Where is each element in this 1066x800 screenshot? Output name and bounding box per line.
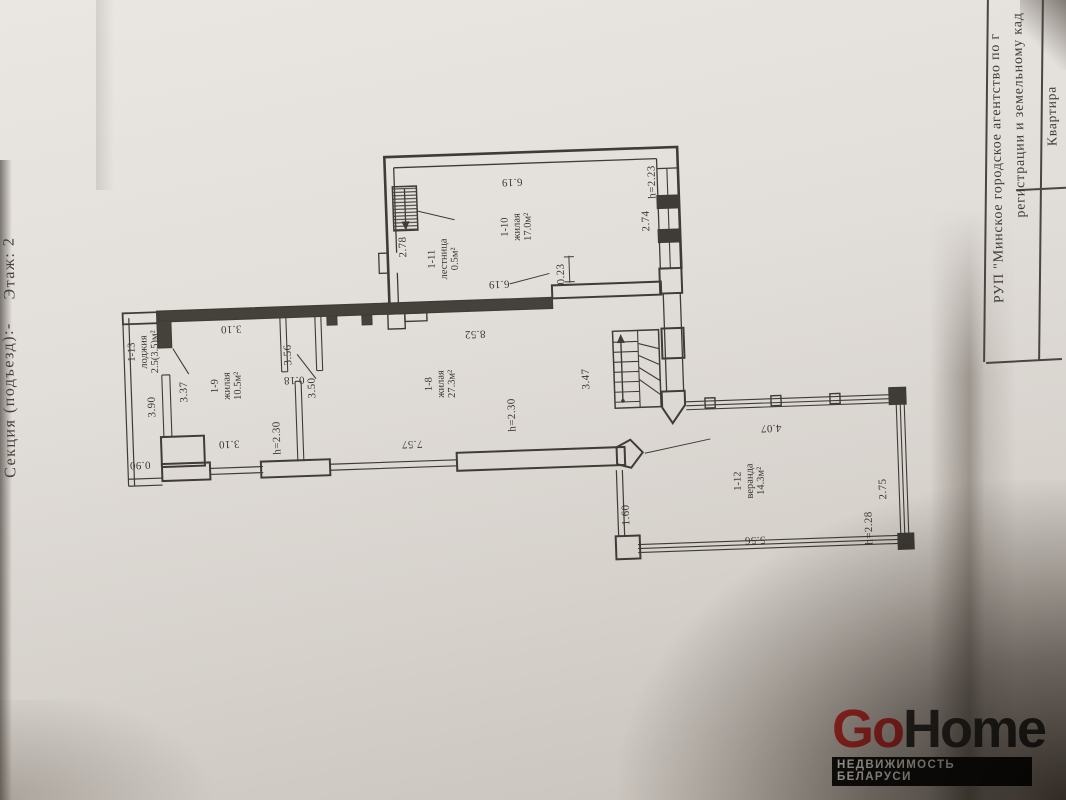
gohome-logo-text: GoHome <box>832 704 1032 754</box>
partitions <box>280 316 326 461</box>
winder-staircase <box>613 330 662 409</box>
logo-tagline-bar: НЕДВИЖИМОСТЬ БЕЛАРУСИ <box>832 757 1032 786</box>
bay-pier-upper <box>662 391 686 424</box>
floor-plan-linework <box>0 0 1066 800</box>
gohome-watermark: GoHome НЕДВИЖИМОСТЬ БЕЛАРУСИ <box>832 704 1032 786</box>
dim-3.90: 3.90 <box>146 396 159 417</box>
main-top-wall <box>157 297 554 337</box>
room-label-1-13: 1-13лоджия2.5(3.5)м² <box>126 330 161 374</box>
dim-3.10-top: 3.10 <box>220 323 241 336</box>
dim-2.75: 2.75 <box>877 478 890 499</box>
balcony-door-swing <box>173 348 189 375</box>
dim-0.90: 0.90 <box>129 459 150 472</box>
stair-1-11-hatch <box>392 185 454 231</box>
dim-4.07: 4.07 <box>760 422 781 435</box>
room-1-10-bottom-wall <box>552 282 661 299</box>
dim-1.60: 1.60 <box>620 504 633 525</box>
dim-5.56: 5.56 <box>744 534 765 547</box>
room-label-1-12: 1-12веранда14.3м² <box>732 463 767 499</box>
logo-go-part: Go <box>832 699 903 759</box>
dim-3.47: 3.47 <box>580 368 593 389</box>
kvartira-cell-label: Квартира <box>1043 86 1060 146</box>
dim-3.56: 3.56 <box>282 344 295 365</box>
dim-h2.23: h=2.23 <box>645 165 658 199</box>
dim-h2.28: h=2.28 <box>862 511 875 545</box>
room-label-1-11: 1-11лестница0.5м² <box>426 238 461 280</box>
bay-pier-lower <box>616 439 643 468</box>
dim-6.19-top: 6.19 <box>501 176 522 189</box>
section-entrance-label: Секция (подъезд):- <box>0 322 20 478</box>
dim-0.18: 0.18 <box>283 374 304 387</box>
dim-8.52: 8.52 <box>464 328 485 341</box>
dim-3.10-bottom: 3.10 <box>218 438 239 451</box>
dim-3.37: 3.37 <box>178 381 191 402</box>
floor-number-label: Этаж: 2 <box>0 236 19 299</box>
logo-home-part: Home <box>903 699 1045 759</box>
dim-2.74: 2.74 <box>640 210 653 231</box>
dim-h2.30-room8: h=2.30 <box>505 398 518 432</box>
dim-3.50: 3.50 <box>306 377 319 398</box>
room-label-1-9: 1-9жилая10.5м² <box>210 372 245 401</box>
main-right-wall <box>660 293 685 392</box>
photographed-floor-plan-document: 1-13лоджия2.5(3.5)м² 1-9жилая10.5м² 1-8ж… <box>0 0 1066 800</box>
bay-leader-line <box>644 439 710 453</box>
room-label-1-10: 1-10жилая17.0м² <box>500 213 535 242</box>
room-label-1-8: 1-8жилая27.3м² <box>424 370 459 399</box>
dim-2.78: 2.78 <box>397 236 410 257</box>
dim-h2.30-room9: h=2.30 <box>270 421 283 455</box>
dim-0.23: 0.23 <box>555 263 568 284</box>
dim-6.19-bottom: 6.19 <box>488 278 509 291</box>
dim-7.57: 7.57 <box>401 438 422 451</box>
